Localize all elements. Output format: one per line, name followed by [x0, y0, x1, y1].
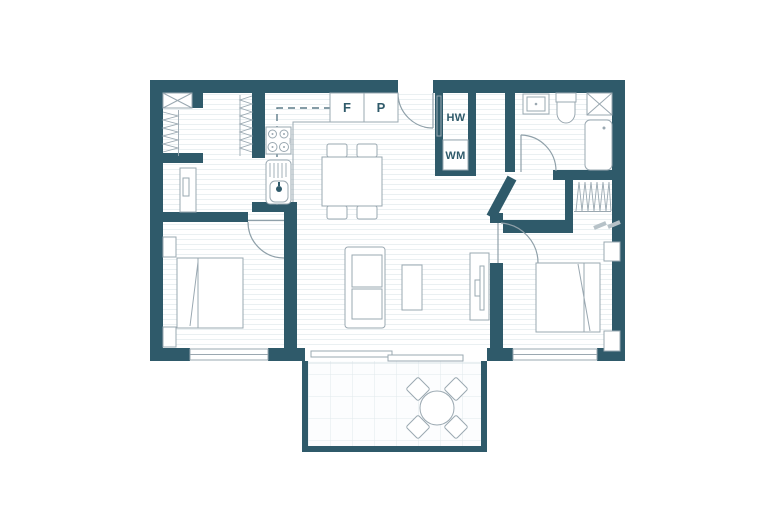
dining-chair — [327, 144, 347, 157]
stove-icon: 600 — [266, 127, 293, 154]
washing-machine-icon: WM — [443, 140, 468, 170]
fridge-label: F — [343, 100, 351, 115]
window-bedroom2 — [513, 349, 597, 360]
openings — [190, 349, 597, 361]
wall-bottom-3 — [487, 348, 513, 361]
nightstand — [163, 237, 176, 257]
floor-plan-svg: F P 600 — [0, 0, 768, 512]
window-bedroom1 — [190, 349, 268, 360]
sofa — [345, 247, 385, 328]
floor-plan-page: F P 600 — [0, 0, 768, 512]
round-outdoor-table — [420, 391, 454, 425]
double-bed — [536, 263, 600, 332]
wall-bathroom-west — [505, 93, 515, 172]
dining-chair — [357, 206, 377, 219]
nightstand — [163, 327, 176, 347]
vanity-basin-icon — [523, 94, 549, 114]
linen-cupboard-icon — [163, 93, 192, 108]
wall-top-left — [150, 80, 398, 93]
hot-water-label: HW — [447, 112, 466, 124]
dresser — [180, 168, 196, 212]
wall-bedroom2-west — [490, 263, 503, 348]
wall-hw-closet-right — [468, 93, 476, 167]
wall-closet-right — [252, 93, 265, 158]
wall-bottom-2 — [268, 348, 305, 361]
wall-closet-stub — [192, 93, 203, 108]
dining-table — [322, 157, 382, 206]
stove-size-label: 600 — [288, 138, 293, 145]
shower-icon — [585, 120, 612, 170]
pantry-cabinet: P — [364, 93, 398, 122]
wall-bedroom1-top — [150, 212, 248, 222]
pantry-label: P — [377, 100, 386, 115]
sink-icon — [266, 160, 291, 204]
wall-bedroom1-living — [284, 212, 297, 348]
washing-machine-label: WM — [445, 150, 465, 162]
double-bed — [177, 258, 243, 328]
tv-unit — [470, 253, 489, 320]
nightstand — [604, 331, 620, 351]
wall-closet-divider — [163, 153, 203, 163]
coffee-table — [402, 265, 422, 310]
sliding-door-balcony — [311, 351, 463, 361]
wall-top-right — [433, 80, 625, 93]
wall-bathroom-bottom — [553, 170, 612, 180]
bathroom-cupboard-icon — [587, 93, 612, 115]
wall-bottom-1 — [150, 348, 190, 361]
nightstand — [604, 242, 620, 261]
dining-chair — [357, 144, 377, 157]
toilet-icon — [556, 93, 576, 123]
wall-hw-closet-left — [435, 93, 443, 167]
dining-chair — [327, 206, 347, 219]
fridge-cabinet: F — [330, 93, 364, 122]
